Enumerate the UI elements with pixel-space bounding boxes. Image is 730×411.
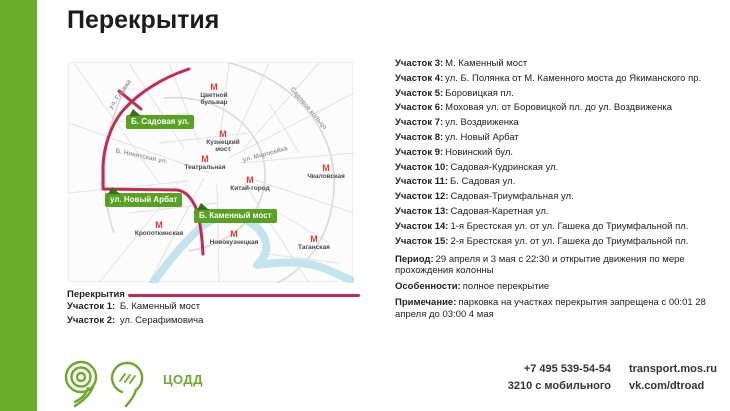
metro-name: Китай-город: [230, 185, 270, 192]
site-link: transport.mos.ru: [629, 361, 717, 378]
section-text: Б. Каменный мост: [120, 301, 200, 312]
phone-block: +7 495 539-54-54 3210 с мобильного: [508, 361, 611, 394]
metro-icon: М: [184, 155, 225, 163]
metro-name: Театральная: [184, 164, 225, 171]
section-label: Участок 9:: [395, 147, 443, 158]
metro-station: М Цветной бульвар: [200, 83, 227, 106]
metro-name: Таганская: [298, 244, 330, 251]
section-line: Участок 11:Б. Садовая ул.: [395, 175, 720, 190]
section-text: ул. Серафимовича: [120, 315, 204, 326]
section-text: ул. Воздвиженка: [445, 117, 518, 128]
features-text: полное перекрытие: [463, 281, 549, 292]
metro-icon: М: [135, 221, 183, 229]
period-text: 29 апреля и 3 мая с 22:30 и открытие дви…: [395, 254, 685, 277]
codd-icon: [112, 363, 142, 406]
legend-item: Участок 2: ул. Серафимовича: [67, 315, 203, 326]
closures-map: ул. Гашека Б. Никитская ул. ул. Маросейк…: [68, 62, 353, 282]
section-label: Участок 2:: [67, 315, 115, 326]
metro-name: Кузнецкий мост: [206, 139, 240, 153]
section-text: ул. Б. Полянка от М. Каменного моста до …: [445, 73, 701, 84]
section-line: Участок 6:Моховая ул. от Боровицкой пл. …: [395, 101, 720, 116]
metro-station: М Новокузнецкая: [210, 230, 259, 246]
closure-line-sample: [128, 294, 360, 297]
metro-name: Новокузнецкая: [210, 239, 259, 246]
footer-logos: [57, 355, 162, 409]
section-label: Участок 8:: [395, 132, 443, 143]
section-line: Участок 5:Боровицкая пл.: [395, 87, 720, 102]
closure-label-kamenny-most: Б. Каменный мост: [194, 209, 277, 223]
section-text: Новинский бул.: [445, 147, 513, 158]
section-text: Б. Садовая ул.: [450, 176, 515, 187]
section-text: Моховая ул. от Боровицкой пл. до ул. Воз…: [445, 102, 672, 113]
metro-icon: М: [200, 83, 227, 91]
section-label: Участок 10:: [395, 162, 448, 173]
footer-contacts: +7 495 539-54-54 3210 с мобильного trans…: [455, 361, 717, 394]
section-label: Участок 5:: [395, 88, 443, 99]
page-title: Перекрытия: [67, 6, 219, 35]
section-label: Участок 11:: [395, 176, 448, 187]
slide: { "page": { "title": "Перекрытия" }, "co…: [0, 0, 730, 411]
section-line: Участок 3:М. Каменный мост: [395, 57, 720, 72]
section-line: Участок 7:ул. Воздвиженка: [395, 116, 720, 131]
section-text: ул. Новый Арбат: [445, 132, 519, 143]
legend-item: Участок 1: Б. Каменный мост: [67, 301, 200, 312]
metro-name: Цветной бульвар: [200, 92, 227, 106]
section-text: Боровицкая пл.: [445, 88, 514, 99]
section-text: 2-я Брестская ул. от ул. Гашека до Триум…: [450, 236, 688, 247]
section-label: Участок 1:: [67, 301, 115, 312]
section-label: Участок 3:: [395, 58, 443, 69]
moscow-transport-icon: [66, 362, 96, 406]
metro-icon: М: [206, 130, 240, 138]
section-label: Участок 6:: [395, 102, 443, 113]
org-name: ЦОДД: [163, 372, 203, 387]
section-line: Участок 14:1-я Брестская ул. от ул. Гаше…: [395, 220, 720, 235]
section-label: Участок 7:: [395, 117, 443, 128]
section-label: Участок 14:: [395, 221, 448, 232]
section-line: Участок 9:Новинский бул.: [395, 146, 720, 161]
section-text: Садовая-Кудринская ул.: [450, 162, 558, 173]
links-block: transport.mos.ru vk.com/dtroad: [629, 361, 717, 394]
metro-station: М Таганская: [298, 235, 330, 251]
section-text: Садовая-Триумфальная ул.: [450, 191, 573, 202]
section-line: Участок 13:Садовая-Каретная ул.: [395, 205, 720, 220]
section-text: 1-я Брестская ул. от ул. Гашека до Триум…: [450, 221, 688, 232]
section-text: М. Каменный мост: [445, 58, 527, 69]
note: Примечание:парковка на участках перекрыт…: [395, 297, 713, 320]
section-label: Участок 15:: [395, 236, 448, 247]
metro-station: М Китай-город: [230, 176, 270, 192]
metro-station: М Кропоткинская: [135, 221, 183, 237]
features: Особенности:полное перекрытие: [395, 281, 713, 293]
section-line: Участок 15:2-я Брестская ул. от ул. Гаше…: [395, 235, 720, 250]
section-label: Участок 12:: [395, 191, 448, 202]
metro-icon: М: [307, 164, 345, 172]
metro-icon: М: [298, 235, 330, 243]
metro-station: М Чкаловская: [307, 164, 345, 180]
section-label: Участок 4:: [395, 73, 443, 84]
metro-station: М Кузнецкий мост: [206, 130, 240, 153]
metro-icon: М: [230, 176, 270, 184]
section-line: Участок 4:ул. Б. Полянка от М. Каменного…: [395, 72, 720, 87]
closure-label-novy-arbat: ул. Новый Арбат: [105, 193, 182, 207]
section-line: Участок 8:ул. Новый Арбат: [395, 131, 720, 146]
metro-name: Чкаловская: [307, 173, 345, 180]
left-accent-band: [0, 0, 37, 411]
section-line: Участок 10:Садовая-Кудринская ул.: [395, 161, 720, 176]
social-link: vk.com/dtroad: [629, 378, 717, 395]
section-line: Участок 12:Садовая-Триумфальная ул.: [395, 190, 720, 205]
closure-details: Участок 3:М. Каменный мост Участок 4:ул.…: [395, 57, 720, 320]
metro-icon: М: [210, 230, 259, 238]
metro-name: Кропоткинская: [135, 230, 183, 237]
period-label: Период:: [395, 254, 434, 265]
note-label: Примечание:: [395, 297, 456, 308]
phone-main: +7 495 539-54-54: [508, 361, 611, 378]
period: Период:29 апреля и 3 мая с 22:30 и откры…: [395, 254, 713, 277]
features-label: Особенности:: [395, 281, 461, 292]
section-text: Садовая-Каретная ул.: [450, 206, 548, 217]
section-label: Участок 13:: [395, 206, 448, 217]
legend-title: Перекрытия: [67, 289, 125, 300]
closure-label-sadovaya: Б. Садовая ул.: [126, 115, 194, 129]
metro-station: М Театральная: [184, 155, 225, 171]
phone-mobile: 3210 с мобильного: [508, 378, 611, 395]
